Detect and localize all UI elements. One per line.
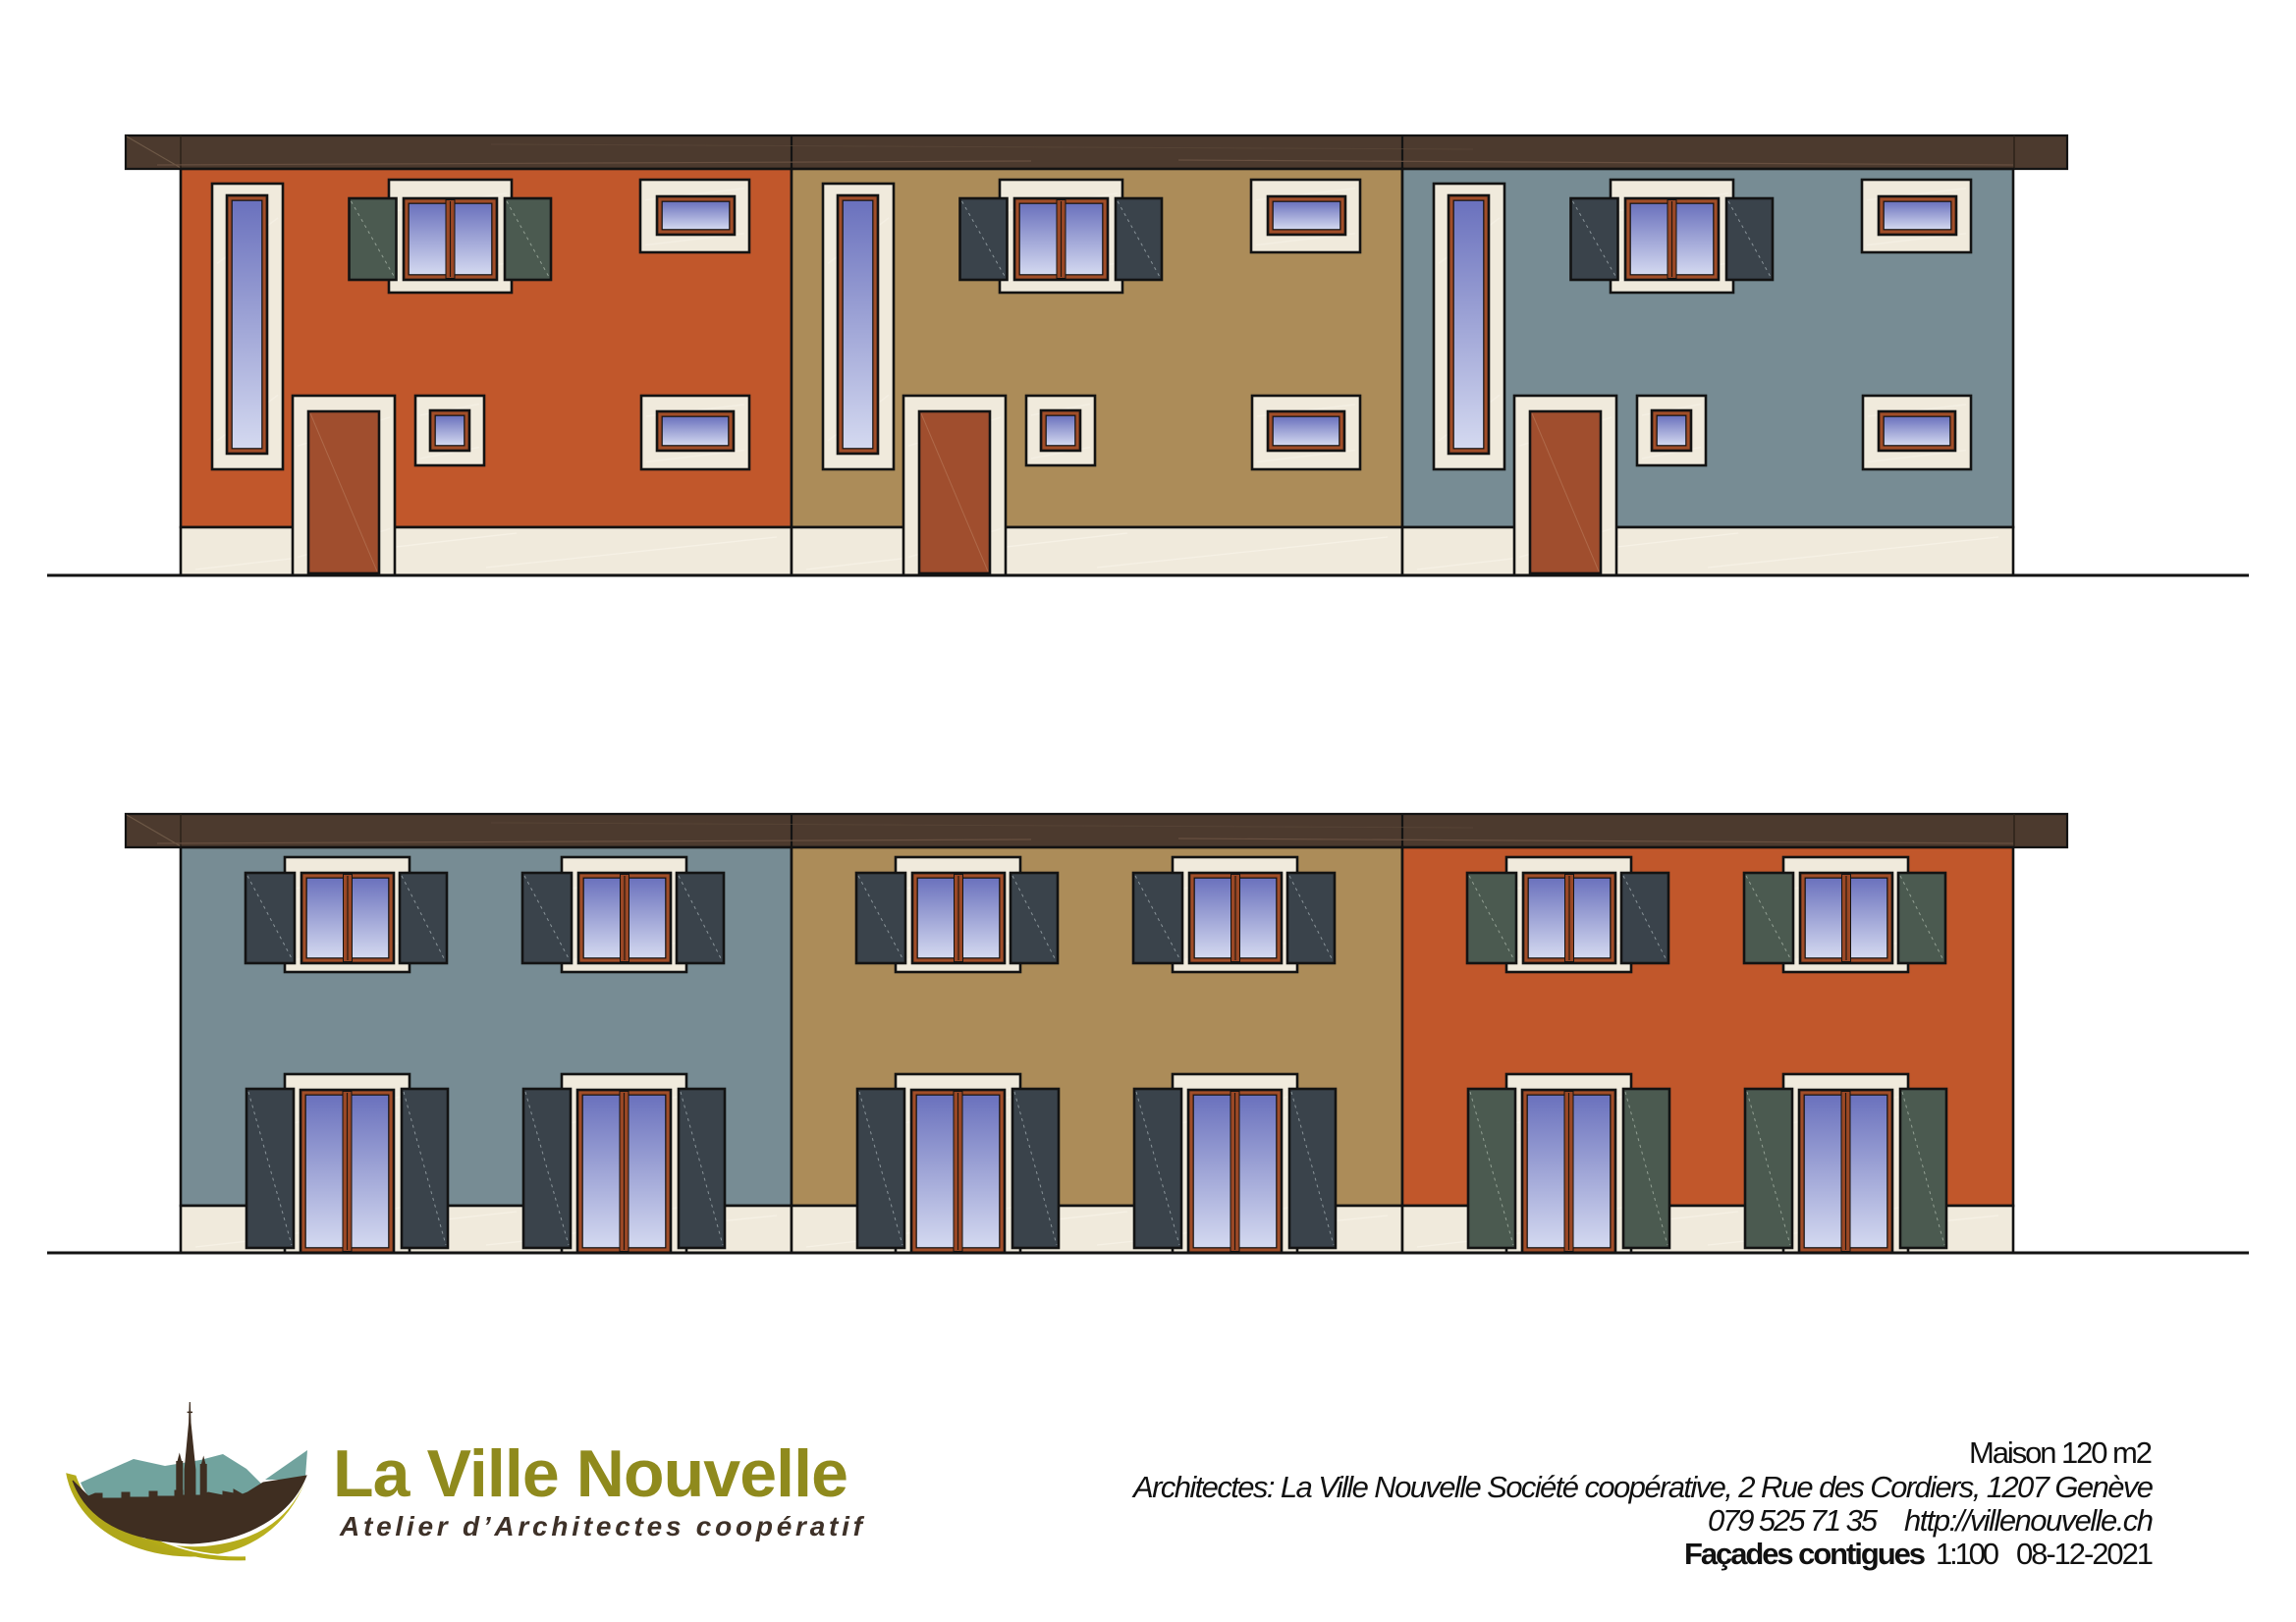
svg-text:La Ville Nouvelle: La Ville Nouvelle: [333, 1436, 848, 1511]
svg-text:Façades contigues: Façades contigues: [1684, 1537, 1926, 1571]
svg-text:Maison 120 m2: Maison 120 m2: [1969, 1435, 2153, 1470]
svg-text:08-12-2021: 08-12-2021: [2016, 1537, 2154, 1571]
svg-text:1:100: 1:100: [1936, 1537, 1999, 1571]
svg-text:http://villenouvelle.ch: http://villenouvelle.ch: [1904, 1503, 2154, 1538]
svg-text:Architectes: La Ville Nouvelle: Architectes: La Ville Nouvelle Société c…: [1131, 1470, 2154, 1504]
svg-text:079 525 71 35: 079 525 71 35: [1708, 1503, 1879, 1538]
svg-text:Atelier d’Architectes coopérat: Atelier d’Architectes coopératif: [339, 1511, 865, 1541]
